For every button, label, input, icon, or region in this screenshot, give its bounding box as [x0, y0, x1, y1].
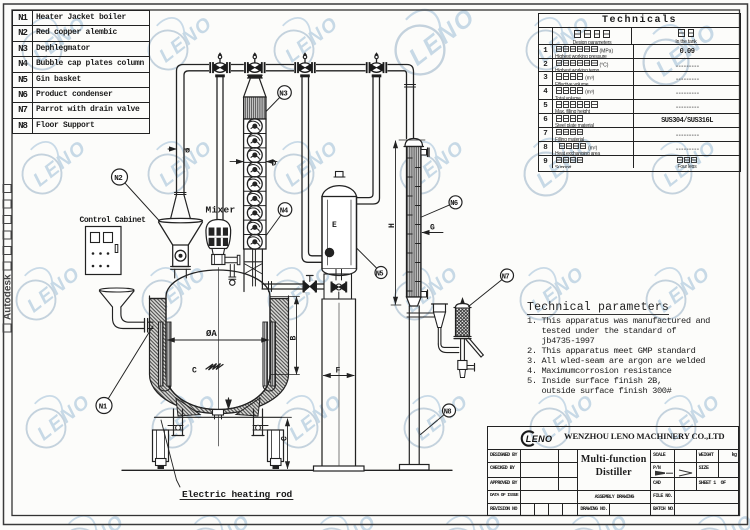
svg-text:N6: N6 [450, 200, 458, 208]
svg-text:B: B [290, 336, 299, 341]
svg-text:N8: N8 [444, 408, 452, 416]
svg-text:F: F [336, 367, 341, 376]
svg-text:Autodesk: Autodesk [3, 274, 14, 320]
svg-text:Control Cabinet: Control Cabinet [80, 216, 147, 225]
svg-text:N5: N5 [376, 270, 384, 278]
svg-text:N2: N2 [114, 175, 123, 183]
svg-text:Mixer: Mixer [206, 205, 236, 216]
svg-text:E: E [332, 221, 337, 230]
svg-text:N4: N4 [280, 207, 289, 215]
svg-text:LENO: LENO [526, 434, 553, 444]
svg-text:C: C [281, 436, 290, 441]
svg-text:Electric heating rod: Electric heating rod [182, 489, 293, 500]
svg-text:C: C [192, 367, 197, 376]
svg-text:N7: N7 [502, 273, 510, 281]
svg-text:ØA: ØA [206, 329, 217, 339]
svg-text:N3: N3 [279, 90, 288, 98]
svg-text:H: H [388, 223, 397, 228]
svg-text:N1: N1 [99, 403, 108, 411]
svg-text:D: D [272, 160, 277, 169]
svg-text:G: G [430, 224, 435, 233]
svg-text:ø: ø [185, 146, 190, 156]
